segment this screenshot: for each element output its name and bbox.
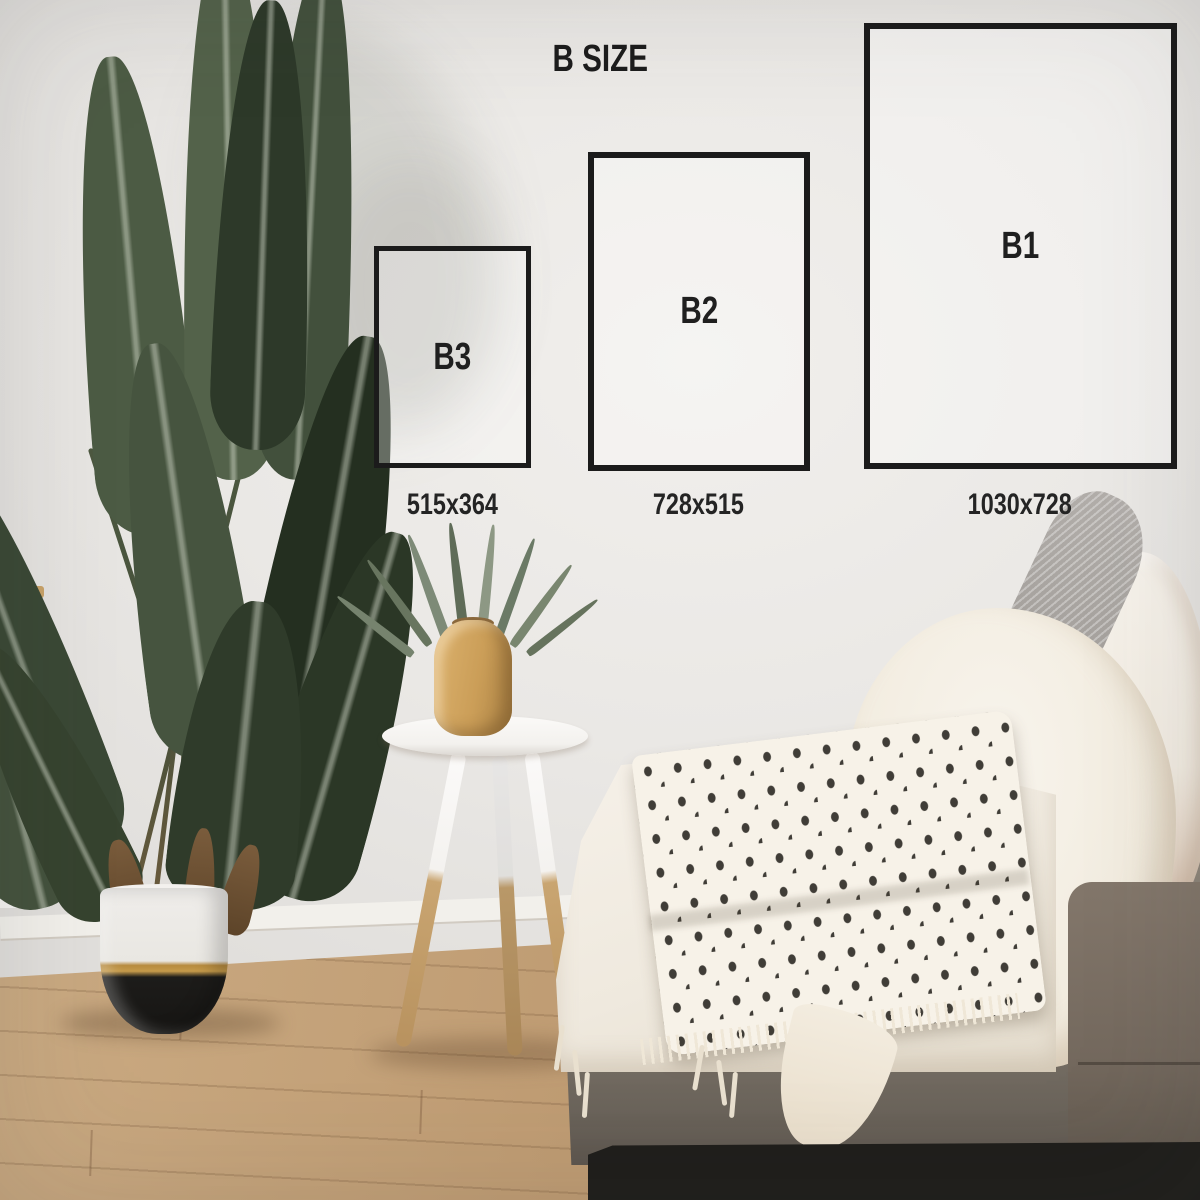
size-label-b2: B2 <box>675 290 724 333</box>
poster-size-mockup-photo: B SIZE B3 515x364 B2 728x515 B1 1030x728 <box>0 0 1200 1200</box>
diagram-title-text: B SIZE <box>552 38 648 81</box>
size-dimensions-b1: 1030x728 <box>920 488 1120 522</box>
size-dimensions-b2: 728x515 <box>598 488 798 522</box>
size-frame-b2: B2 <box>588 152 810 471</box>
size-label-b3: B3 <box>428 336 477 379</box>
size-frame-b3: B3 <box>374 246 531 468</box>
size-label-b1: B1 <box>996 225 1045 268</box>
size-dimensions-b3: 515x364 <box>352 488 552 522</box>
diagram-title: B SIZE <box>480 38 720 81</box>
size-frame-b1: B1 <box>864 23 1177 469</box>
